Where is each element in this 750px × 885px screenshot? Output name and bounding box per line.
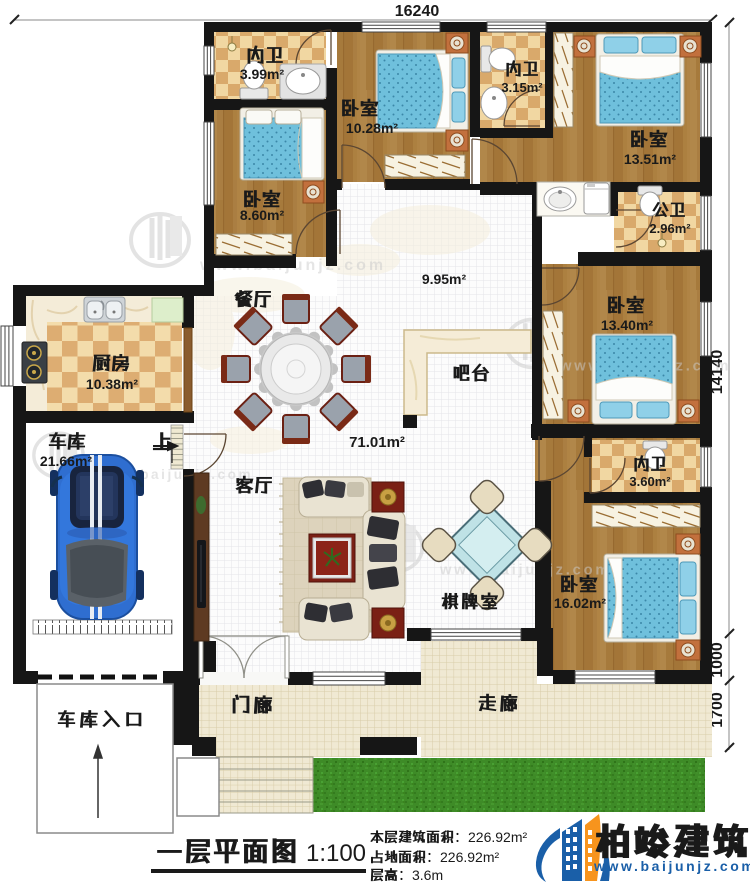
svg-text:10.28m²: 10.28m²	[346, 120, 398, 136]
svg-text:16240: 16240	[395, 3, 440, 20]
svg-text:8.60m²: 8.60m²	[240, 207, 285, 223]
svg-text:13.40m²: 13.40m²	[601, 317, 653, 333]
svg-text:1:100: 1:100	[306, 840, 366, 867]
svg-text:71.01m²: 71.01m²	[349, 434, 405, 451]
svg-text:3.99m²: 3.99m²	[240, 66, 285, 82]
svg-text:21.66m²: 21.66m²	[40, 453, 92, 469]
svg-text:2.96m²: 2.96m²	[649, 221, 691, 236]
svg-text:9.95m²: 9.95m²	[422, 271, 467, 287]
svg-text:：226.92m²: ：226.92m²	[454, 829, 527, 845]
svg-text:3.60m²: 3.60m²	[629, 474, 671, 489]
svg-text:：3.6m: ：3.6m	[398, 867, 443, 883]
svg-text:16.02m²: 16.02m²	[554, 595, 606, 611]
svg-text:13.51m²: 13.51m²	[624, 151, 676, 167]
svg-text:10.38m²: 10.38m²	[86, 376, 138, 392]
svg-text:3.15m²: 3.15m²	[501, 80, 543, 95]
svg-text:：226.92m²: ：226.92m²	[426, 849, 499, 865]
svg-text:www.baijunjz.com: www.baijunjz.com	[593, 858, 750, 874]
